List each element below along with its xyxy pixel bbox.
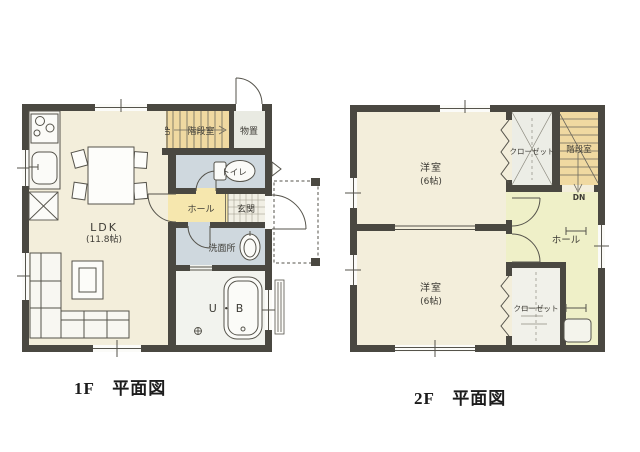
- caption-1f: 1F 平面図: [74, 374, 166, 399]
- chair: [133, 152, 147, 169]
- coffee-table: [72, 261, 103, 299]
- label-ldk-size: (11.8帖): [86, 233, 122, 245]
- floor1-plan: LDK (11.8帖) ホール 玄関 トイレ 洗面所 U・B 階段室 物置 UP: [17, 78, 320, 357]
- label-hall1: ホール: [187, 204, 214, 215]
- toilet-vent: [272, 162, 281, 176]
- caption-2f: 2F 平面図: [414, 384, 506, 409]
- label-up: UP: [164, 126, 172, 135]
- label-storage: 物置: [240, 125, 258, 137]
- label-closet-top: クローゼット: [510, 146, 555, 156]
- label-bedroom-top: 洋室: [420, 161, 442, 174]
- kitchen-sink: [32, 152, 57, 184]
- porch: [274, 178, 320, 266]
- floorplan-page: LDK (11.8帖) ホール 玄関 トイレ 洗面所 U・B 階段室 物置 UP: [0, 0, 640, 452]
- floor2-plan: 洋室 (6帖) 洋室 (6帖) クローゼット クローゼット 階段室 DN ホール: [345, 100, 609, 357]
- front-door-arc: [265, 195, 306, 229]
- chair: [133, 182, 147, 199]
- label-bedroom-top-size: (6帖): [420, 175, 442, 187]
- water-heater: [275, 280, 284, 334]
- storage-door-arc: [236, 78, 262, 111]
- label-toilet: トイレ: [221, 168, 247, 178]
- label-bath: U・B: [209, 302, 248, 315]
- label-bedroom-bottom-size: (6帖): [420, 295, 442, 307]
- label-dn: DN: [573, 193, 586, 202]
- label-stairwell2: 階段室: [566, 144, 592, 155]
- kitchen-counter: [29, 111, 60, 189]
- label-bedroom-bottom: 洋室: [420, 281, 442, 294]
- label-ldk: LDK: [90, 221, 118, 234]
- label-hall2: ホール: [552, 235, 581, 246]
- chair: [72, 182, 87, 200]
- label-stairwell1: 階段室: [187, 125, 214, 137]
- refrigerator-space: [29, 192, 58, 220]
- hall-counter: [564, 319, 591, 342]
- label-closet-bottom: クローゼット: [514, 303, 559, 313]
- label-entrance: 玄関: [237, 203, 255, 215]
- label-washroom: 洗面所: [208, 242, 235, 254]
